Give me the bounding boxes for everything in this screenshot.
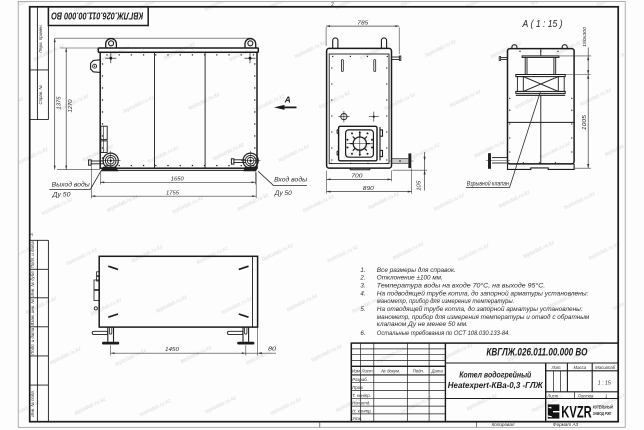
svg-text:80: 80: [268, 347, 276, 353]
svg-text:Т. контр.: Т. контр.: [352, 393, 371, 398]
svg-text:Подп.: Подп.: [413, 368, 424, 373]
svg-text:Выход воды: Выход воды: [52, 183, 91, 189]
svg-text:Лит.: Лит.: [551, 365, 562, 370]
svg-text:Подп. и дата: Подп. и дата: [30, 327, 35, 355]
svg-text:1450: 1450: [165, 347, 179, 353]
svg-text:Котел водогрейный: Котел водогрейный: [459, 371, 531, 380]
svg-text:манометр, прибор для измерения: манометр, прибор для измерения температу…: [377, 298, 515, 305]
svg-text:На отводящей трубе котла, до з: На отводящей трубе котла, до запорной ар…: [377, 306, 583, 313]
svg-text:Взрывной клапан: Взрывной клапан: [467, 181, 510, 188]
svg-text:Лист: Лист: [361, 368, 373, 373]
svg-text:КВГЛЖ.026.011.00.000 ВО: КВГЛЖ.026.011.00.000 ВО: [51, 10, 143, 21]
svg-text:700: 700: [351, 174, 362, 180]
svg-text:Остальные требования по ОСТ 10: Остальные требования по ОСТ 108.030.133-…: [377, 330, 510, 337]
svg-text:1005: 1005: [582, 115, 588, 130]
svg-text:2: 2: [331, 2, 334, 8]
svg-text:Лист: Лист: [546, 393, 558, 398]
svg-text:Heatexpert-КВа-0,3 -ГЛЖ: Heatexpert-КВа-0,3 -ГЛЖ: [448, 381, 543, 390]
svg-text:105: 105: [417, 181, 423, 191]
svg-text:1.: 1.: [360, 267, 365, 274]
svg-text:1375: 1375: [57, 96, 63, 109]
svg-text:Нач.отд.: Нач.отд.: [352, 401, 370, 406]
svg-text:Ду 50: Ду 50: [274, 191, 293, 197]
svg-text:Температура воды на входе 70°С: Температура воды на входе 70°С, на выход…: [377, 282, 545, 289]
svg-text:На подводящей трубе котла, до: На подводящей трубе котла, до запорной а…: [377, 290, 589, 297]
svg-text:Масса: Масса: [573, 365, 586, 370]
svg-text:КОТЕЛЬНЫЙ: КОТЕЛЬНЫЙ: [593, 404, 614, 409]
svg-text:клапаном Ду не менее 50 мм.: клапаном Ду не менее 50 мм.: [377, 321, 468, 328]
svg-text:Ду 50: Ду 50: [51, 193, 71, 199]
svg-text:1755: 1755: [166, 191, 179, 197]
svg-text:КВГЛЖ.026.011.00.000 ВО: КВГЛЖ.026.011.00.000 ВО: [486, 346, 588, 358]
svg-text:1 : 15: 1 : 15: [598, 380, 612, 386]
svg-text:ЗАВОД РЭП: ЗАВОД РЭП: [593, 411, 612, 416]
svg-text:Дата: Дата: [431, 368, 444, 373]
svg-text:Копировал: Копировал: [492, 422, 515, 427]
svg-text:Изм: Изм: [352, 368, 360, 373]
svg-text:Формат А3: Формат А3: [553, 422, 579, 427]
svg-text:Справ. №: Справ. №: [38, 85, 43, 105]
svg-text:Отклонение ±100 мм.: Отклонение ±100 мм.: [377, 275, 443, 282]
svg-text:Перв. примен.: Перв. примен.: [38, 24, 43, 53]
svg-text:2.: 2.: [359, 275, 365, 282]
svg-text:Пров.: Пров.: [352, 385, 363, 390]
svg-text:150х300: 150х300: [582, 27, 587, 47]
svg-text:Листов: Листов: [577, 393, 594, 398]
svg-text:А: А: [284, 94, 291, 104]
svg-text:Взам. инв. №: Взам. инв. №: [30, 299, 35, 326]
svg-text:№ докум.: № докум.: [381, 368, 400, 373]
svg-text:А ( 1 : 15 ): А ( 1 : 15 ): [522, 19, 563, 30]
svg-text:Вход воды: Вход воды: [274, 178, 308, 184]
svg-text:А: А: [29, 232, 33, 237]
svg-text:785: 785: [357, 20, 368, 26]
svg-text:6.: 6.: [360, 330, 365, 337]
svg-text:KVZR: KVZR: [561, 403, 592, 422]
svg-text:890: 890: [363, 186, 374, 192]
svg-text:Разраб.: Разраб.: [352, 377, 368, 382]
svg-text:Подп. и дата: Подп. и дата: [30, 241, 35, 269]
svg-text:5.: 5.: [360, 306, 365, 313]
svg-text:Утв.: Утв.: [352, 416, 362, 421]
svg-text:Все размеры для справок.: Все размеры для справок.: [377, 267, 456, 274]
svg-text:1650: 1650: [171, 177, 184, 183]
svg-text:Инв. № подл.: Инв. № подл.: [30, 390, 35, 417]
svg-text:1270: 1270: [68, 99, 74, 112]
svg-text:манометр, прибор для измерения: манометр, прибор для измерения температу…: [377, 314, 590, 321]
svg-text:Н. контр.: Н. контр.: [352, 408, 371, 413]
svg-text:4.: 4.: [360, 290, 365, 297]
svg-text:3.: 3.: [360, 282, 365, 289]
svg-text:Инв. № дубл.: Инв. № дубл.: [30, 270, 35, 296]
svg-text:Масштаб: Масштаб: [595, 365, 616, 370]
